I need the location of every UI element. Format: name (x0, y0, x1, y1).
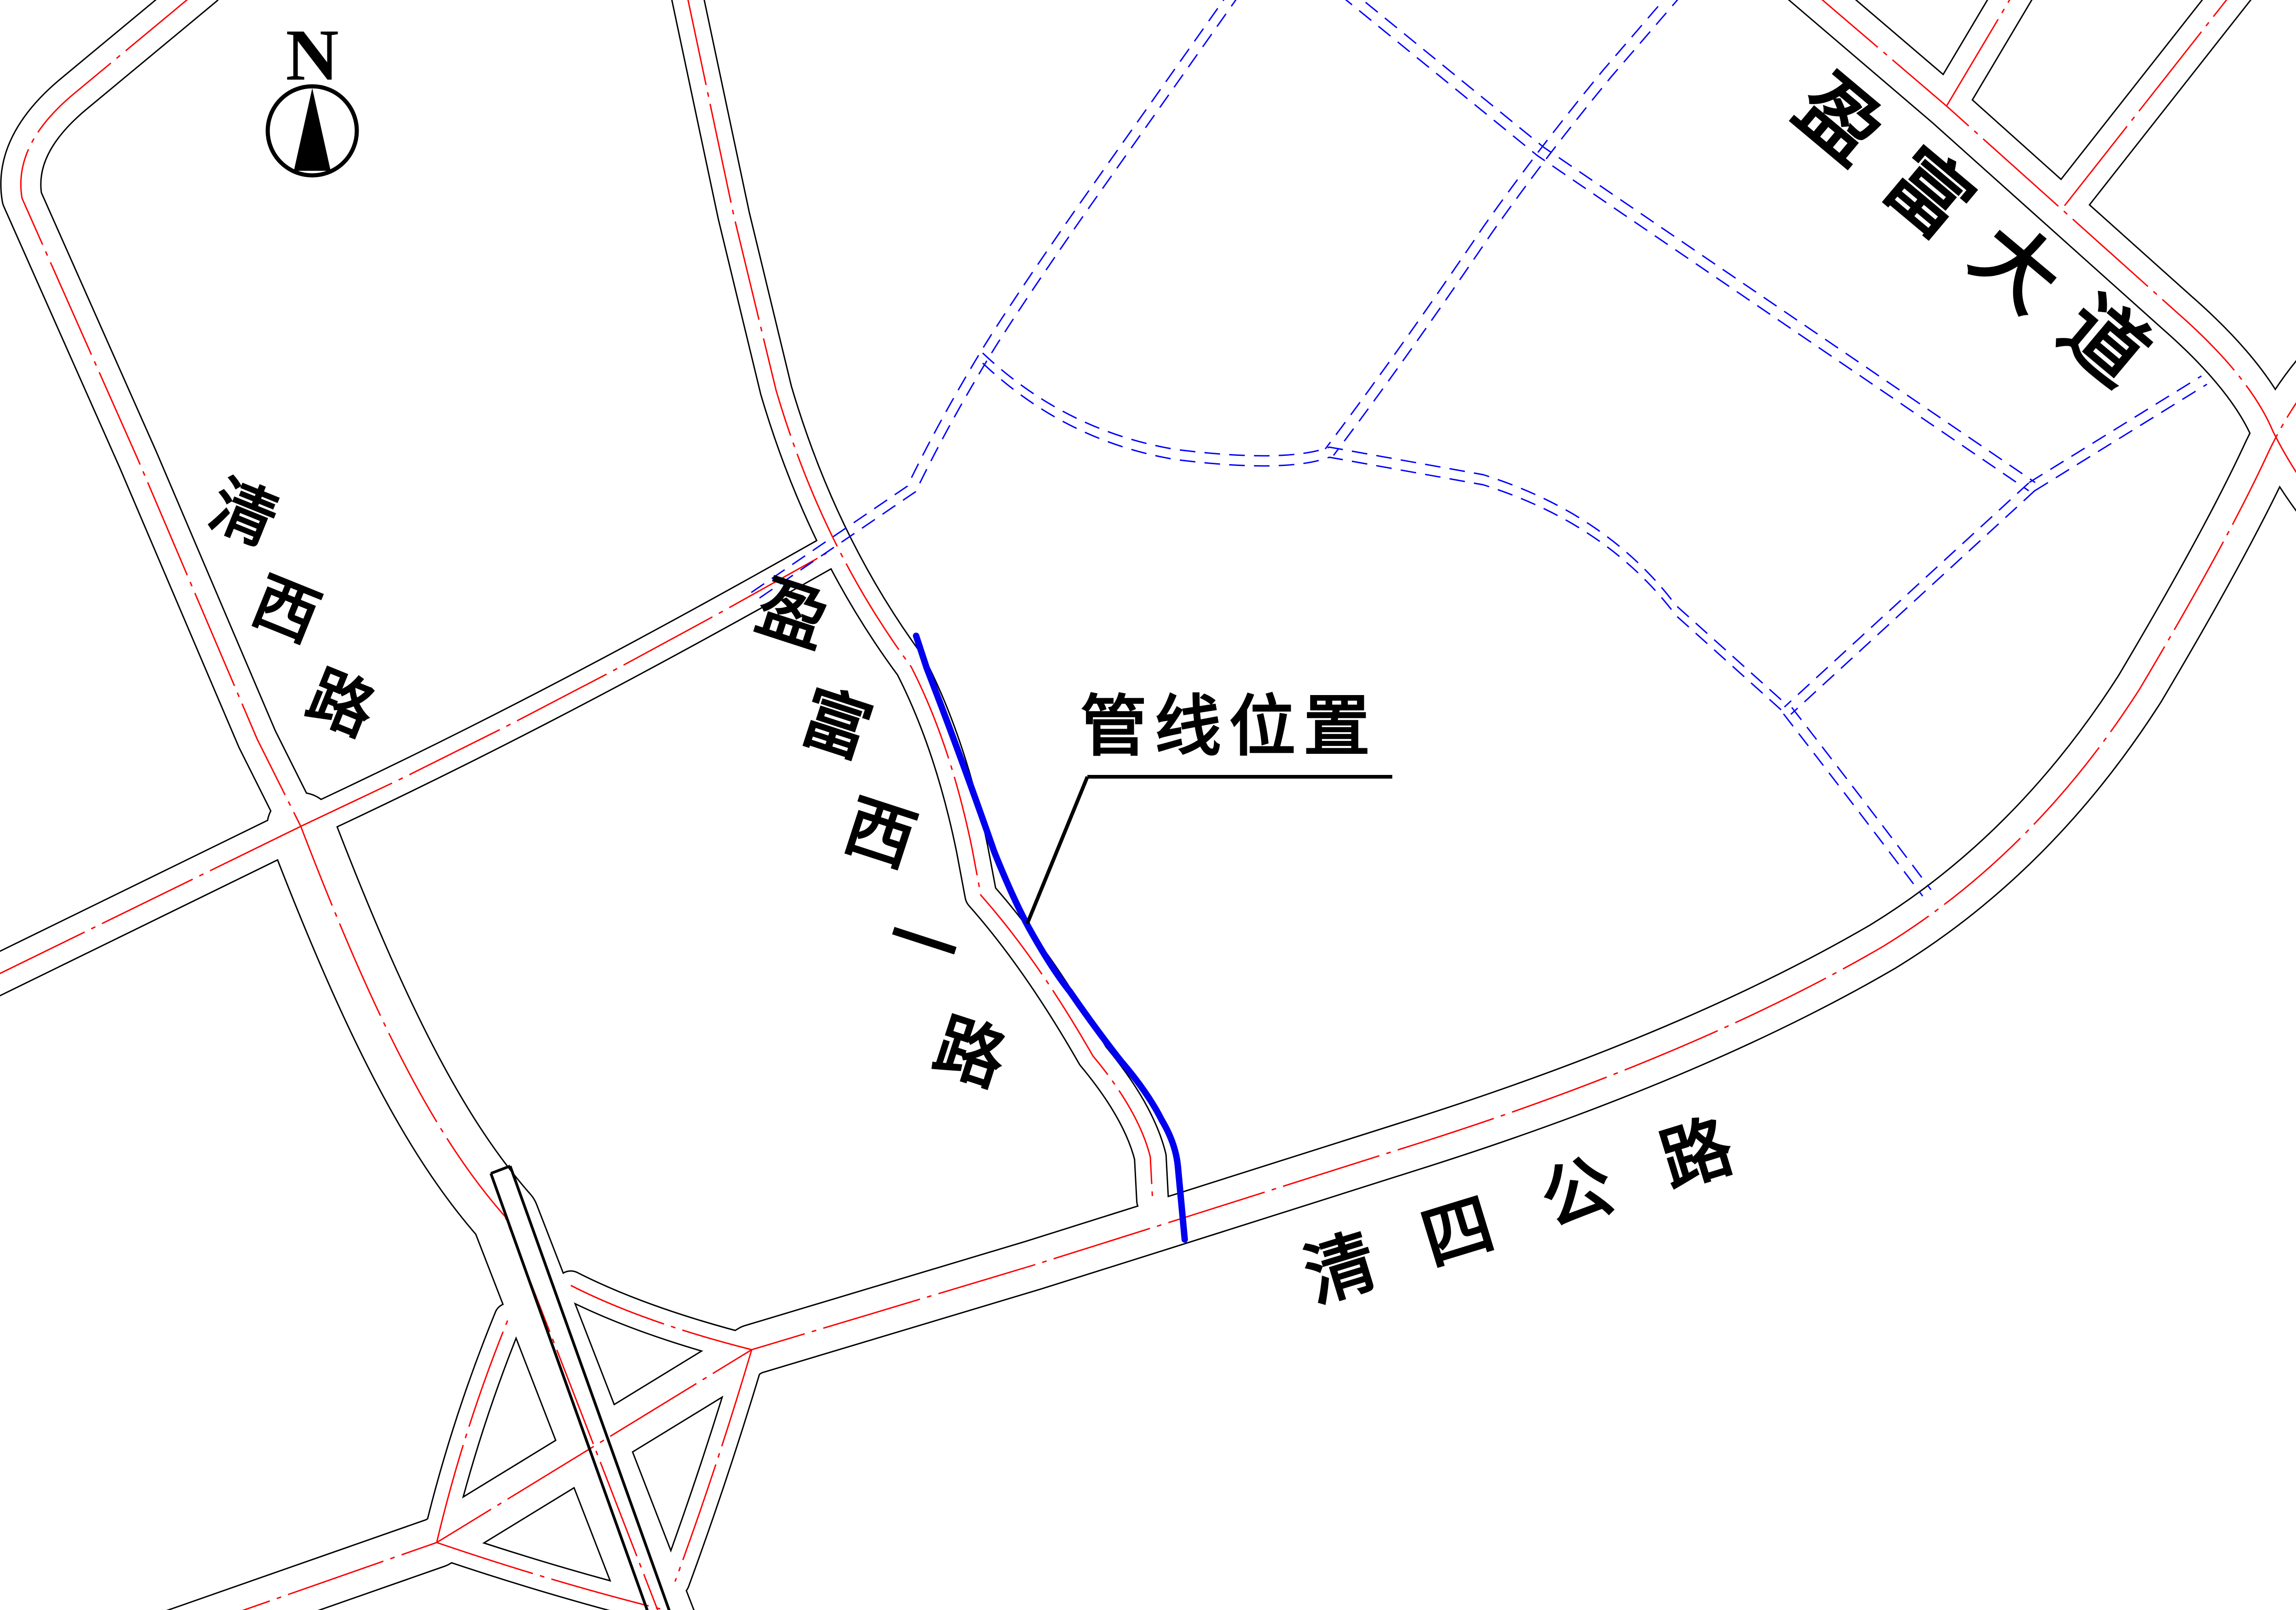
centerline-qingsi (174, 367, 2296, 1610)
planned-corridor-b (983, 353, 1788, 716)
north-arrow (268, 86, 357, 175)
planned-corridor-d (1325, 0, 1683, 455)
pipeline-label-char: 置 (1304, 695, 1370, 761)
planned-corridor-f (1784, 707, 1931, 896)
map-drawing (0, 0, 2296, 1610)
pipeline-label-leader (1027, 777, 1392, 924)
road-qingsi (174, 367, 2296, 1610)
pipeline-label-char: 管 (1080, 695, 1147, 761)
leader-line (1027, 777, 1087, 924)
planned-corridor-e (2029, 376, 2207, 491)
pipeline-label-char: 位 (1229, 695, 1296, 761)
pipeline-label-char: 线 (1155, 695, 1221, 761)
pipeline-location-map: 清西路盈富西一路盈富大道清四公路管线位置N (0, 0, 2296, 1610)
road-centerlines (0, 0, 2296, 1610)
planned-corridor-g (1784, 483, 2035, 714)
compass-needle (294, 88, 331, 171)
compass-n-letter: N (286, 13, 339, 98)
